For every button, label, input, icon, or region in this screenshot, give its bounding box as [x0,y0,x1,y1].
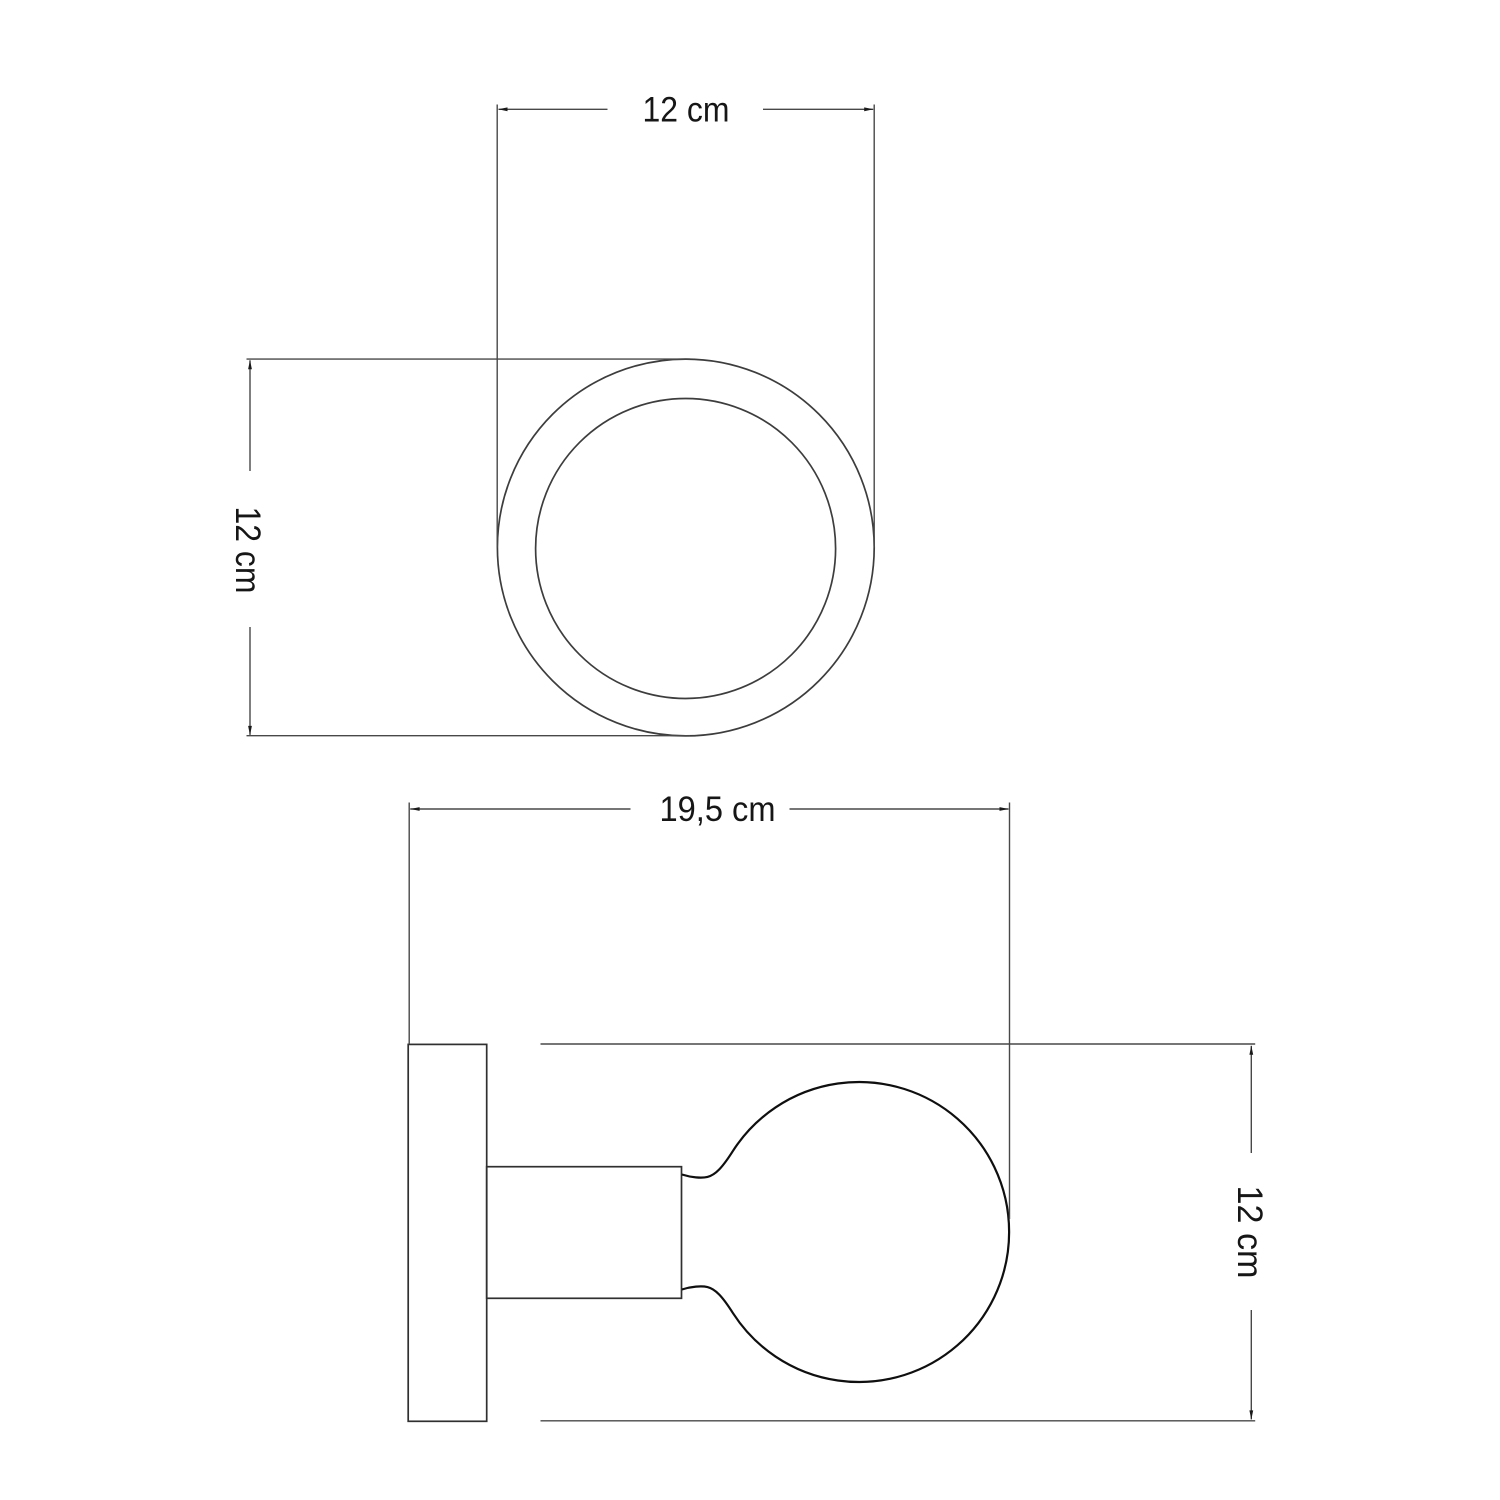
svg-text:12 cm: 12 cm [1230,1186,1269,1279]
svg-text:19,5 cm: 19,5 cm [660,790,776,829]
svg-text:12 cm: 12 cm [643,91,730,130]
svg-text:12 cm: 12 cm [228,507,267,594]
